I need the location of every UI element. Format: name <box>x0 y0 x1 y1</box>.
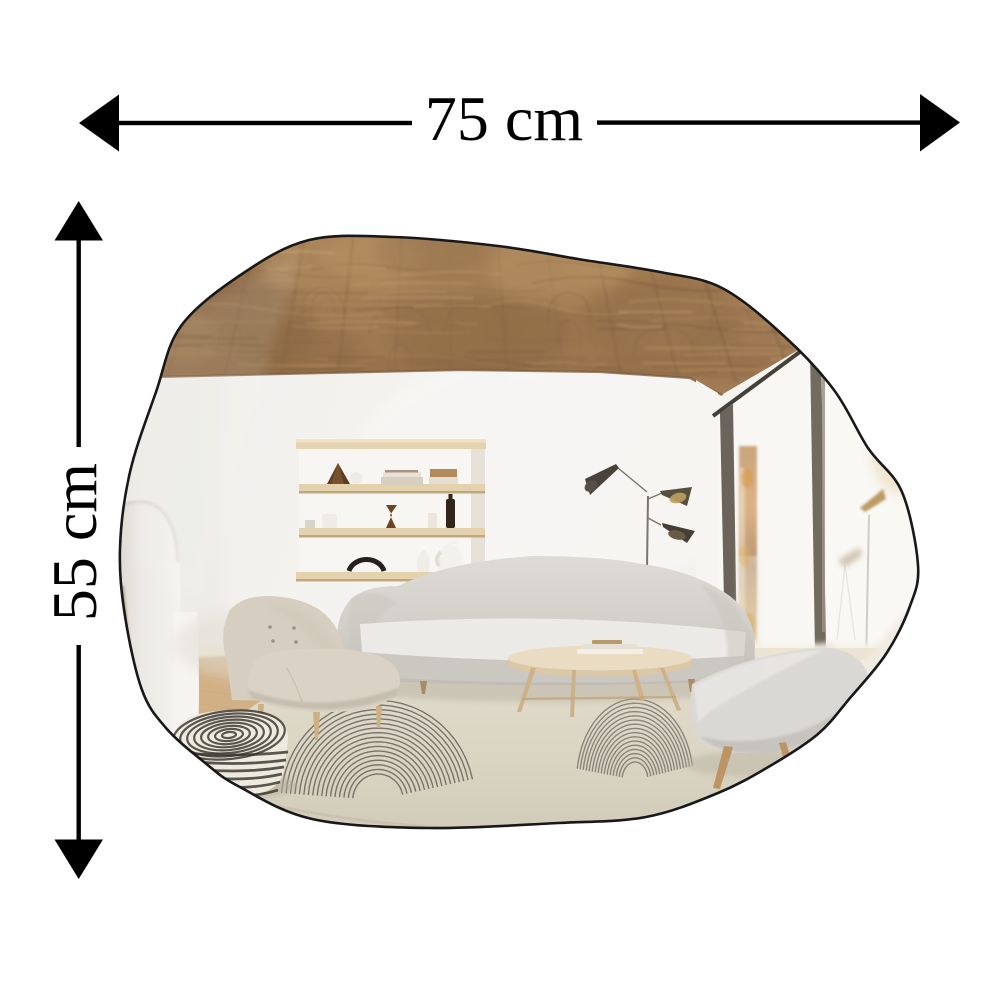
svg-text:75 cm: 75 cm <box>425 83 583 154</box>
svg-text:55 cm: 55 cm <box>39 463 110 621</box>
